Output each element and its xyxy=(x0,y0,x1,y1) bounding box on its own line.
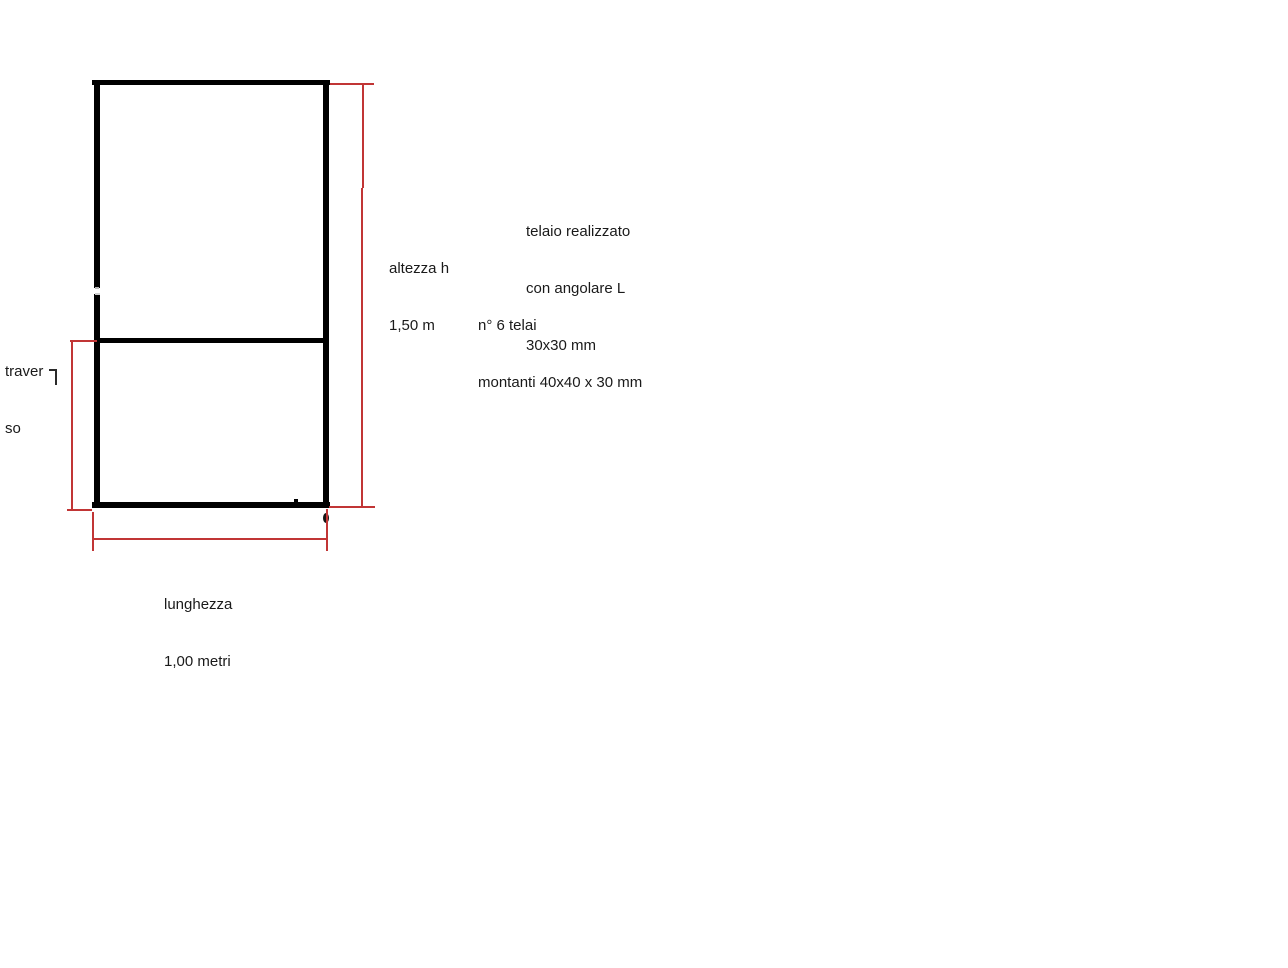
traverso-dim-line-vertical xyxy=(71,341,73,511)
montanti-note-line2: montanti 40x40 x 30 mm xyxy=(478,373,642,392)
traverso-label-line1: traver xyxy=(5,362,43,381)
frame-joint-speck-bottom xyxy=(95,293,100,295)
altezza-label: altezza h 1,50 m xyxy=(389,221,449,373)
frame-crossbar-traverso xyxy=(97,338,324,343)
altezza-label-line2: 1,50 m xyxy=(389,316,449,335)
lunghezza-dim-tick-left xyxy=(92,512,94,551)
lunghezza-label: lunghezza 1,00 metri xyxy=(164,557,232,709)
frame-joint-speck-top xyxy=(95,287,99,289)
traverso-label: traver so xyxy=(5,324,43,476)
lunghezza-label-line2: 1,00 metri xyxy=(164,652,232,671)
altezza-dim-line-vertical-lower xyxy=(361,188,363,507)
frame-top-edge xyxy=(92,80,330,85)
montanti-note: n° 6 telai montanti 40x40 x 30 mm xyxy=(478,278,642,430)
traverso-dim-tick-bottom xyxy=(67,509,92,511)
altezza-dim-line-vertical-upper xyxy=(362,83,364,188)
altezza-label-line1: altezza h xyxy=(389,259,449,278)
frame-bottom-edge xyxy=(92,502,330,508)
frame-right-edge xyxy=(323,80,329,508)
telaio-note-line1: telaio realizzato xyxy=(526,222,630,241)
bottom-edge-speck xyxy=(294,499,298,502)
altezza-dim-tick-bottom xyxy=(329,506,375,508)
montanti-note-line1: n° 6 telai xyxy=(478,316,642,335)
lunghezza-dim-tick-right xyxy=(326,509,328,551)
lunghezza-dim-line xyxy=(93,538,328,540)
paint-canvas: altezza h 1,50 m telaio realizzato con a… xyxy=(0,0,1288,968)
altezza-dim-tick-top xyxy=(330,83,374,85)
traverso-dim-tick-top xyxy=(70,340,97,342)
traverso-label-line2: so xyxy=(5,419,43,438)
lunghezza-label-line1: lunghezza xyxy=(164,595,232,614)
stray-stroke-mark xyxy=(49,369,57,385)
